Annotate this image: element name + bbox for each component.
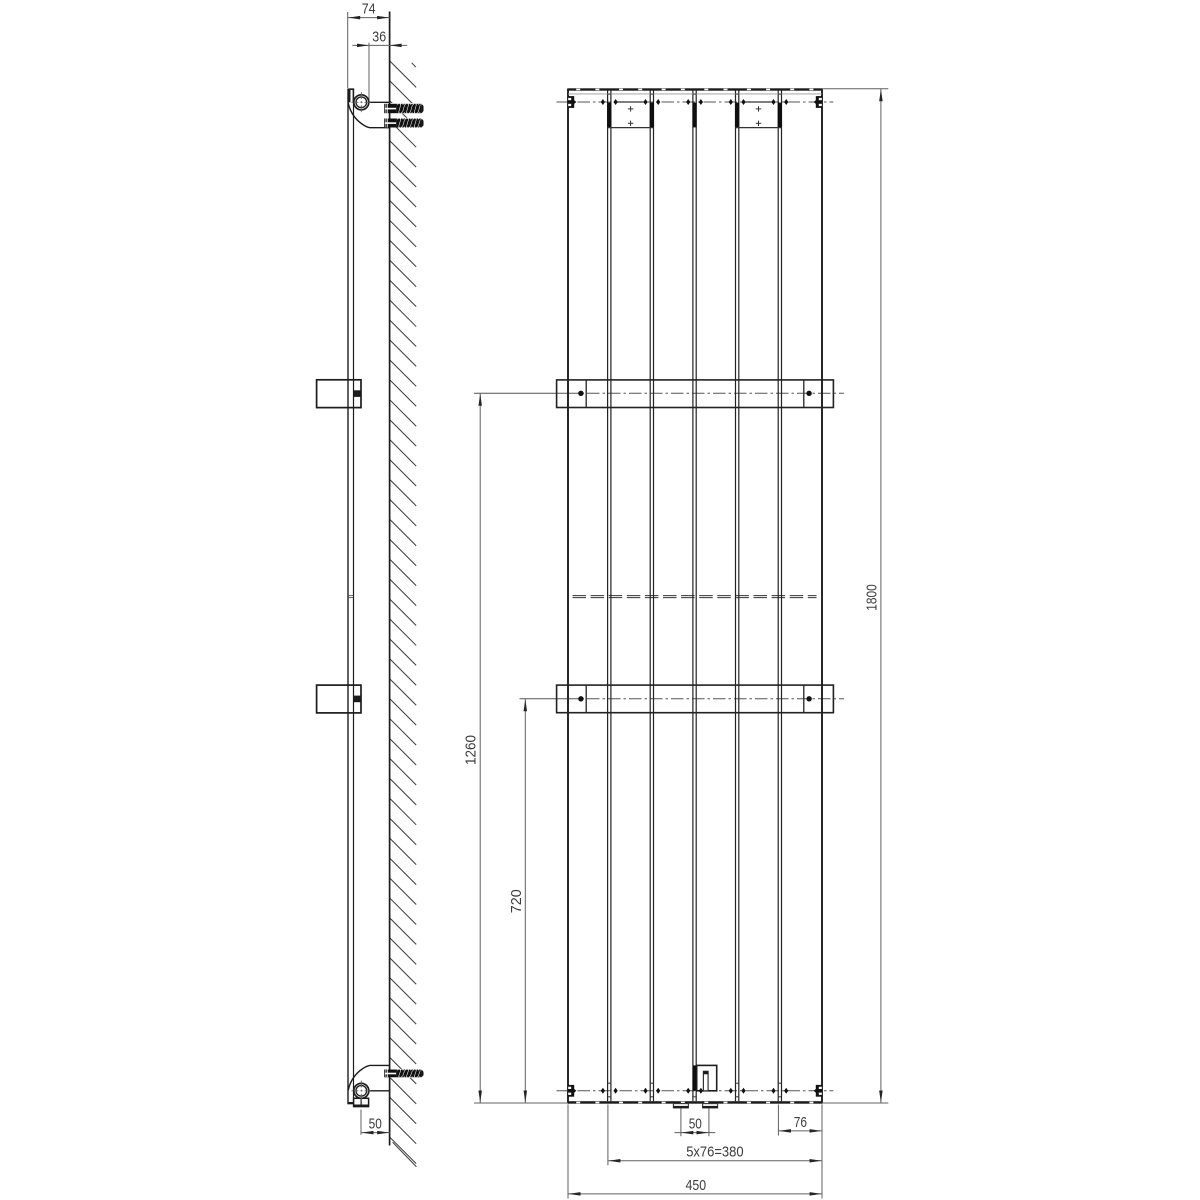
svg-text:1260: 1260: [464, 735, 480, 765]
svg-text:720: 720: [509, 889, 525, 913]
svg-text:50: 50: [369, 1117, 382, 1133]
svg-text:76: 76: [794, 1115, 807, 1131]
svg-text:5x76=380: 5x76=380: [686, 1145, 743, 1161]
svg-text:450: 450: [686, 1178, 707, 1194]
svg-text:74: 74: [362, 2, 376, 18]
svg-text:1800: 1800: [864, 584, 880, 611]
svg-text:36: 36: [372, 29, 386, 45]
svg-text:50: 50: [689, 1117, 702, 1133]
